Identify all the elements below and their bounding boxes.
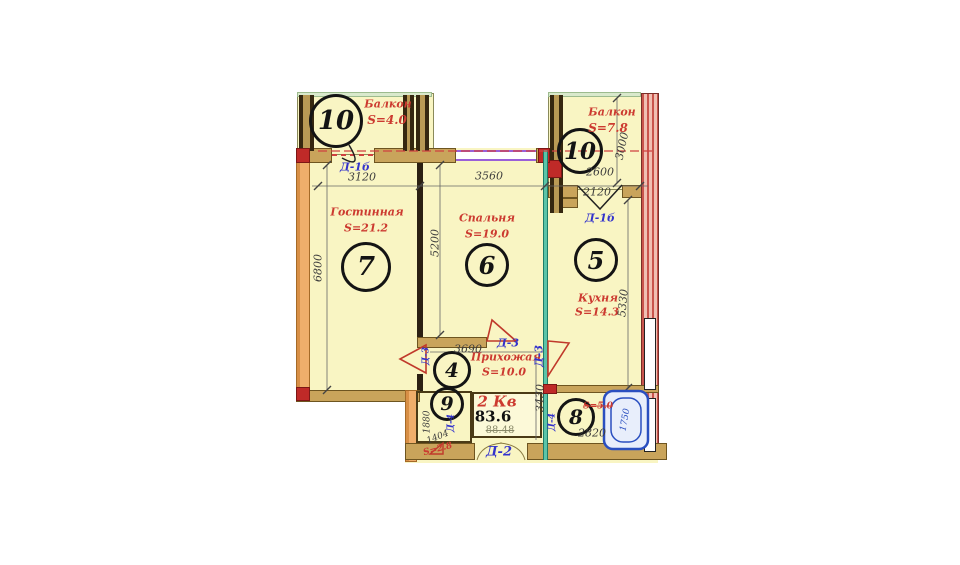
apartment-old-area: 88.48	[486, 426, 515, 436]
room-number: 7	[357, 252, 375, 282]
dim-balcony-left-width: 3120	[348, 172, 376, 183]
balcony-left-name: Балкон	[364, 99, 411, 110]
room-circle-hallway: 4	[433, 351, 471, 389]
room-number: 10	[318, 106, 354, 136]
bath-right-window	[644, 398, 656, 452]
left-wall-bottom-red	[296, 387, 310, 401]
bath-door-label: Д-4	[549, 413, 558, 431]
left-exterior-wall	[296, 150, 310, 400]
dim-balcony-right-door-width: 2120	[583, 187, 611, 198]
living-bottom-wall	[296, 390, 420, 402]
balcony-left-area: S=4.0	[367, 114, 407, 126]
dim-hallway-width: 3690	[454, 344, 482, 355]
wc-door-label: Д-4	[448, 414, 457, 432]
room-circle-balcony-left: 10	[309, 94, 363, 148]
dim-wc-depth: 1880	[424, 411, 433, 434]
living-bedroom-wall-upper	[417, 163, 423, 342]
top-left-red-junction	[296, 148, 310, 163]
balcony-left-post-corner	[416, 95, 429, 151]
room-circle-living: 7	[341, 242, 391, 292]
hall-door-left-label: Д-3	[423, 347, 432, 365]
bathroom-area: S=5.0	[583, 403, 613, 412]
hall-door-right-label: Д-3	[534, 345, 545, 367]
room-circle-bedroom: 6	[465, 243, 509, 287]
kitchen-right-window	[644, 318, 656, 390]
living-name: Гостинная	[330, 207, 403, 218]
dim-living-width: 5200	[430, 229, 441, 257]
hallway-area: S=10.0	[482, 367, 526, 378]
kitchen-name: Кухня	[578, 293, 618, 304]
dim-hallway-depth: 3430	[535, 384, 546, 412]
room-number: 8	[569, 405, 583, 429]
top-wall-mid-segment	[374, 148, 456, 163]
dim-bathroom-width: 2820	[578, 428, 606, 439]
hall-door-top-label: Д-3	[497, 338, 519, 349]
balcony-right-name: Балкон	[588, 107, 635, 118]
apartment-total-area: 83.6	[475, 410, 512, 425]
room-number: 5	[588, 246, 605, 275]
floor-plan: 10 10 7 6 5 4 9 8 Балкон S=4.0 Балкон S=…	[0, 0, 960, 565]
dim-kitchen-depth: 5330	[616, 289, 629, 318]
balcony-right-bottom-wall-right	[622, 185, 642, 198]
dim-bedroom-width: 3560	[475, 171, 503, 182]
bedroom-name: Спальня	[459, 213, 515, 224]
room-number: 4	[445, 358, 459, 382]
room-number: 10	[564, 138, 596, 165]
dim-balcony-right-width: 2600	[586, 167, 614, 178]
bedroom-window	[456, 150, 536, 161]
room-number: 6	[479, 251, 496, 280]
room-number: 9	[440, 393, 453, 415]
entry-door-label: Д-2	[486, 446, 512, 459]
living-area: S=21.2	[344, 223, 388, 234]
bedroom-area: S=19.0	[465, 229, 509, 240]
room-circle-kitchen: 5	[574, 238, 618, 282]
kitchen-area: S=14.3	[575, 307, 619, 318]
bath-top-wall	[543, 385, 659, 393]
dim-living-depth: 6800	[313, 254, 324, 282]
balcony-right-door-label: Д-1б	[585, 213, 615, 224]
